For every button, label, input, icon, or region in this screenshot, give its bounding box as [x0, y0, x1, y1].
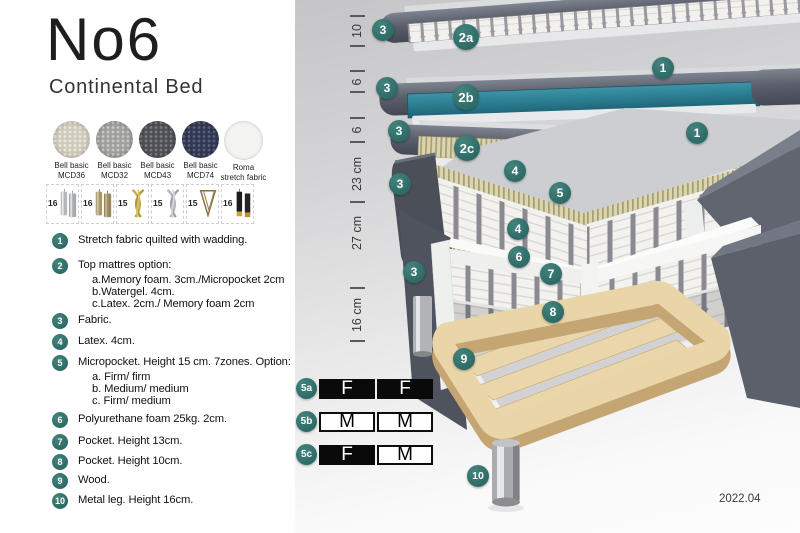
- diagram-badge-2a: 2a: [453, 24, 479, 50]
- legend-item: 4Latex. 4cm.: [52, 333, 294, 350]
- dimension-tick: [350, 117, 365, 119]
- diagram-badge-9: 9: [453, 348, 475, 370]
- diagram-badge-4: 4: [504, 160, 526, 182]
- legend-text-block: Latex. 4cm.: [78, 333, 135, 350]
- firmness-cell: F: [319, 445, 375, 465]
- firmness-row-5c: 5cFM: [296, 444, 433, 465]
- legend-number-badge: 4: [52, 334, 68, 350]
- legend-text-block: Micropocket. Height 15 cm. 7zones. Optio…: [78, 354, 291, 407]
- legend-number-badge: 7: [52, 434, 68, 450]
- leg-option: 16: [46, 184, 79, 224]
- diagram-badge-1: 1: [686, 122, 708, 144]
- legend-text: Stretch fabric quilted with wadding.: [78, 232, 247, 249]
- fabric-code-line: MCD32: [97, 171, 131, 181]
- legend-number-badge: 6: [52, 412, 68, 428]
- fabric-swatch: Bell basicMCD32: [93, 121, 136, 182]
- diagram-panel: 106623 cm27 cm16 cm 32a132b32c1345463789…: [295, 0, 800, 533]
- firmness-badge: 5c: [296, 444, 317, 465]
- legend-number-badge: 1: [52, 233, 68, 249]
- legend-item: 1Stretch fabric quilted with wadding.: [52, 232, 294, 249]
- fabric-swatch-label: Bell basicMCD32: [97, 161, 131, 180]
- legend-number-badge: 5: [52, 355, 68, 371]
- fabric-swatch-circle: [96, 121, 133, 158]
- legend-text-block: Pocket. Height 10cm.: [78, 453, 182, 470]
- diagram-badge-5: 5: [549, 182, 571, 204]
- dimension-label: 6: [350, 127, 364, 134]
- firmness-row-5b: 5bMM: [296, 411, 433, 432]
- fabric-name-line: Bell basic: [97, 161, 131, 171]
- legend-item: 8Pocket. Height 10cm.: [52, 453, 294, 470]
- legend-text: Latex. 4cm.: [78, 333, 135, 350]
- dimension-label: 6: [350, 79, 364, 86]
- leg-height-label: 16: [48, 198, 57, 208]
- diagram-badge-6: 6: [508, 246, 530, 268]
- diagram-badge-3: 3: [403, 261, 425, 283]
- fabric-code-line: MCD36: [54, 171, 88, 181]
- leg-icon-black-gold-cylinder: [233, 188, 253, 224]
- firmness-cell: F: [319, 379, 375, 399]
- firmness-cell: F: [377, 379, 433, 399]
- legend-sub-option: b.Watergel. 4cm.: [78, 286, 284, 298]
- diagram-badge-3: 3: [372, 19, 394, 41]
- legend-list: 1Stretch fabric quilted with wadding.2To…: [52, 232, 294, 509]
- fabric-swatch: Bell basicMCD74: [179, 121, 222, 182]
- leg-icon-silver-twist: [163, 188, 183, 224]
- dimension-tick: [350, 45, 365, 47]
- leg-icon-gold-twist: [128, 188, 148, 224]
- leg-height-label: 15: [188, 198, 197, 208]
- fabric-code-line: stretch fabric: [221, 173, 267, 183]
- fabric-code-line: MCD43: [140, 171, 174, 181]
- legend-item: 3Fabric.: [52, 312, 294, 329]
- legend-item: 9Wood.: [52, 472, 294, 489]
- metal-leg-back-left: [413, 296, 432, 357]
- dimension-tick: [350, 340, 365, 342]
- fabric-swatch: Bell basicMCD43: [136, 121, 179, 182]
- leg-options-row: 161615151516: [46, 184, 256, 224]
- diagram-badge-3: 3: [388, 120, 410, 142]
- fabric-swatch-label: Bell basicMCD36: [54, 161, 88, 180]
- firmness-row-5a: 5aFF: [296, 378, 433, 399]
- legend-text: Top mattres option:: [78, 257, 284, 274]
- legend-text: Wood.: [78, 472, 110, 489]
- diagram-badge-3: 3: [376, 77, 398, 99]
- leg-option: 15: [151, 184, 184, 224]
- diagram-badge-3: 3: [389, 173, 411, 195]
- leg-icon-hairpin: [198, 188, 218, 224]
- diagram-badge-4: 4: [507, 218, 529, 240]
- legend-text-block: Pocket. Height 13cm.: [78, 433, 182, 450]
- dimension-label: 16 cm: [350, 298, 364, 332]
- dimension-tick: [350, 201, 365, 203]
- firmness-cell: M: [377, 412, 433, 432]
- legend-number-badge: 10: [52, 493, 68, 509]
- leg-icon-silver-cylinder: [58, 188, 78, 224]
- firmness-badge: 5a: [296, 378, 317, 399]
- legend-text-block: Metal leg. Height 16cm.: [78, 492, 193, 509]
- legend-item: 5Micropocket. Height 15 cm. 7zones. Opti…: [52, 354, 294, 407]
- legend-sub-option: a.Memory foam. 3cm./Micropocket 2cm: [78, 274, 284, 286]
- legend-text-block: Polyurethane foam 25kg. 2cm.: [78, 411, 227, 428]
- leg-option: 15: [116, 184, 149, 224]
- legend-text: Pocket. Height 10cm.: [78, 453, 182, 470]
- firmness-cell: M: [377, 445, 433, 465]
- legend-sub-option: a. Firm/ firm: [78, 371, 291, 383]
- legend-text: Pocket. Height 13cm.: [78, 433, 182, 450]
- legend-number-badge: 2: [52, 258, 68, 274]
- legend-text: Fabric.: [78, 312, 112, 329]
- fabric-swatch-label: Bell basicMCD43: [140, 161, 174, 180]
- legend-sub-option: c.Latex. 2cm./ Memory foam 2cm: [78, 298, 284, 310]
- legend-number-badge: 8: [52, 454, 68, 470]
- dimension-label: 10: [350, 24, 364, 38]
- info-panel: No6 Continental Bed Bell basicMCD36Bell …: [0, 0, 295, 533]
- diagram-badge-8: 8: [542, 301, 564, 323]
- metal-leg-front: [488, 439, 524, 512]
- leg-height-label: 15: [118, 198, 127, 208]
- diagram-badge-1: 1: [652, 57, 674, 79]
- dimension-tick: [350, 287, 365, 289]
- dimension-tick: [350, 15, 365, 17]
- legend-text-block: Fabric.: [78, 312, 112, 329]
- legend-item: 2Top mattres option:a.Memory foam. 3cm./…: [52, 257, 294, 310]
- fabric-swatch: Romastretch fabric: [222, 121, 265, 182]
- fabric-name-line: Bell basic: [54, 161, 88, 171]
- fabric-swatch-row: Bell basicMCD36Bell basicMCD32Bell basic…: [50, 121, 265, 182]
- firmness-badge: 5b: [296, 411, 317, 432]
- legend-sub-option: b. Medium/ medium: [78, 383, 291, 395]
- leg-height-label: 15: [153, 198, 162, 208]
- fabric-swatch-circle: [182, 121, 219, 158]
- firmness-cell: M: [319, 412, 375, 432]
- diagram-badge-7: 7: [540, 263, 562, 285]
- dimension-label: 23 cm: [350, 157, 364, 191]
- diagram-badge-10: 10: [467, 465, 489, 487]
- legend-item: 10Metal leg. Height 16cm.: [52, 492, 294, 509]
- legend-text-block: Top mattres option:a.Memory foam. 3cm./M…: [78, 257, 284, 310]
- leg-height-label: 16: [83, 198, 92, 208]
- product-subtitle: Continental Bed: [49, 76, 203, 99]
- leg-icon-brass-cylinder: [93, 188, 113, 224]
- legend-text-block: Wood.: [78, 472, 110, 489]
- legend-sub-option: c. Firm/ medium: [78, 395, 291, 407]
- legend-item: 7Pocket. Height 13cm.: [52, 433, 294, 450]
- fabric-swatch-circle: [53, 121, 90, 158]
- version-label: 2022.04: [719, 493, 761, 505]
- infographic: No6 Continental Bed Bell basicMCD36Bell …: [0, 0, 800, 533]
- fabric-swatch: Bell basicMCD36: [50, 121, 93, 182]
- diagram-badge-2b: 2b: [453, 84, 479, 110]
- leg-option: 15: [186, 184, 219, 224]
- fabric-swatch-circle: [139, 121, 176, 158]
- legend-number-badge: 9: [52, 473, 68, 489]
- fabric-swatch-label: Romastretch fabric: [221, 163, 267, 182]
- product-title: No6: [46, 8, 162, 71]
- legend-text: Metal leg. Height 16cm.: [78, 492, 193, 509]
- leg-height-label: 16: [223, 198, 232, 208]
- fabric-name-line: Bell basic: [183, 161, 217, 171]
- fabric-code-line: MCD74: [183, 171, 217, 181]
- fabric-swatch-circle: [224, 121, 263, 160]
- dimension-tick: [350, 141, 365, 143]
- legend-text: Micropocket. Height 15 cm. 7zones. Optio…: [78, 354, 291, 371]
- layer-top-mattress-2a: [378, 0, 800, 54]
- legend-number-badge: 3: [52, 313, 68, 329]
- dimension-tick: [350, 91, 365, 93]
- dimension-label: 27 cm: [350, 216, 364, 250]
- legend-text: Polyurethane foam 25kg. 2cm.: [78, 411, 227, 428]
- leg-option: 16: [81, 184, 114, 224]
- legend-item: 6Polyurethane foam 25kg. 2cm.: [52, 411, 294, 428]
- dimension-tick: [350, 70, 365, 72]
- fabric-name-line: Roma: [221, 163, 267, 173]
- fabric-name-line: Bell basic: [140, 161, 174, 171]
- diagram-badge-2c: 2c: [454, 135, 480, 161]
- fabric-swatch-label: Bell basicMCD74: [183, 161, 217, 180]
- legend-text-block: Stretch fabric quilted with wadding.: [78, 232, 247, 249]
- leg-option: 16: [221, 184, 254, 224]
